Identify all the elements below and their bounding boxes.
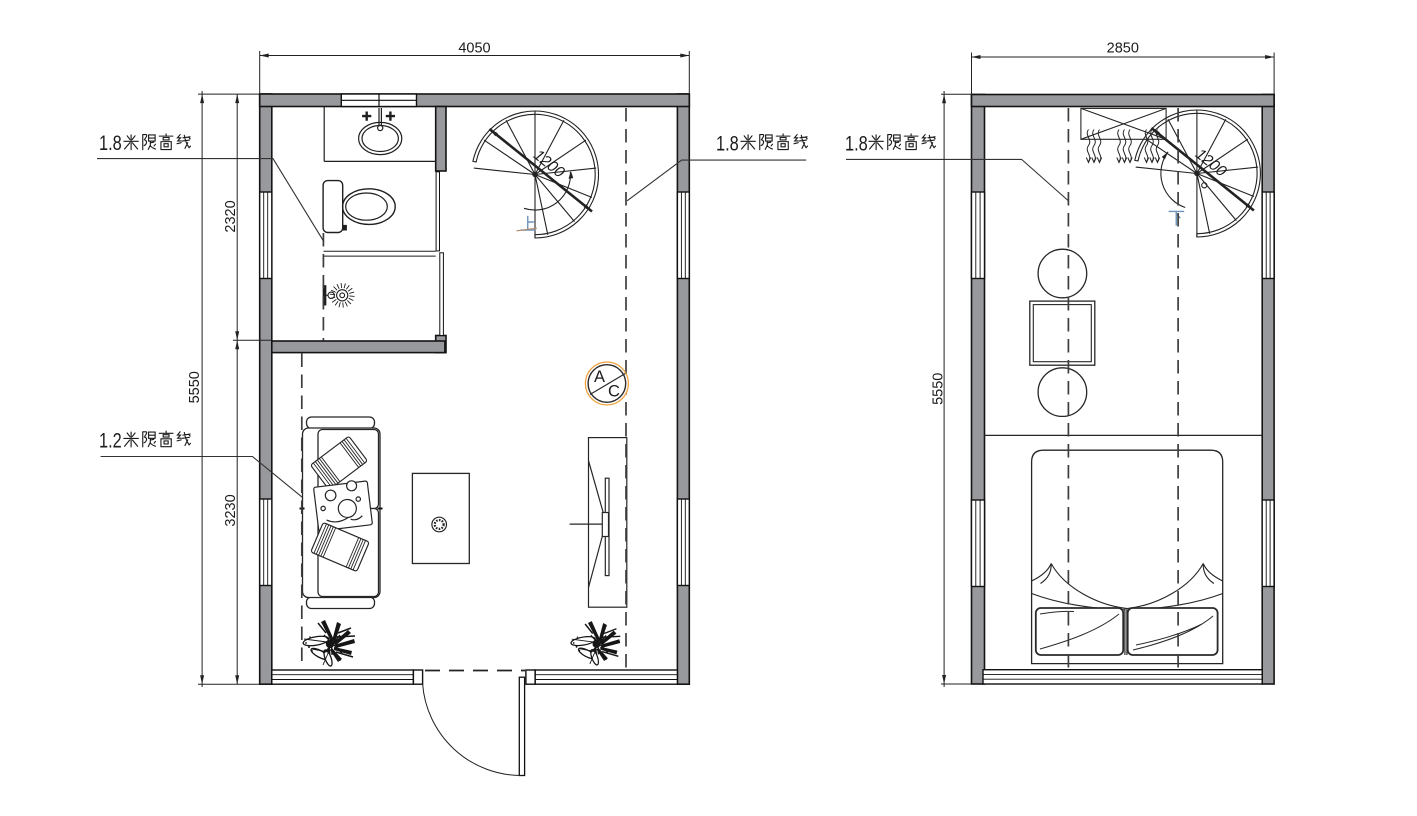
svg-text:5550: 5550 [187,371,203,403]
svg-text:5550: 5550 [930,373,946,405]
svg-text:C: C [608,383,620,401]
svg-text:1.8: 1.8 [716,132,739,155]
svg-text:2320: 2320 [223,200,239,232]
svg-text:3230: 3230 [223,494,239,526]
svg-text:A: A [594,368,605,386]
svg-text:1.8: 1.8 [99,131,122,154]
svg-text:4050: 4050 [458,41,490,57]
svg-text:1.8: 1.8 [845,132,868,155]
svg-text:1.2: 1.2 [99,429,122,452]
svg-text:2850: 2850 [1107,41,1139,57]
